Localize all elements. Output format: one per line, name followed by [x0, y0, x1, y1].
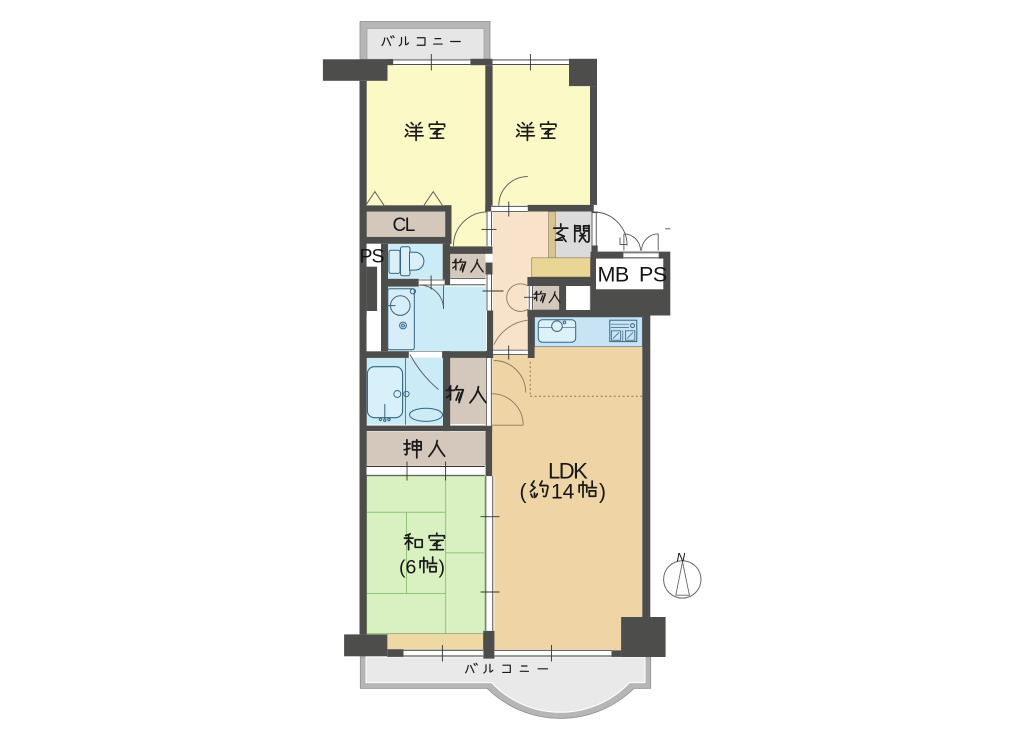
svg-text:CL: CL — [393, 215, 415, 236]
svg-text:N: N — [677, 551, 686, 565]
svg-text:): ) — [439, 557, 446, 579]
svg-text:MB: MB — [598, 263, 629, 287]
svg-text:PS: PS — [639, 263, 667, 287]
svg-text:): ) — [599, 481, 606, 504]
svg-text:(: ( — [520, 481, 527, 504]
svg-text:14: 14 — [551, 481, 575, 504]
svg-text:PS: PS — [360, 246, 385, 268]
svg-text:(6: (6 — [399, 557, 416, 579]
